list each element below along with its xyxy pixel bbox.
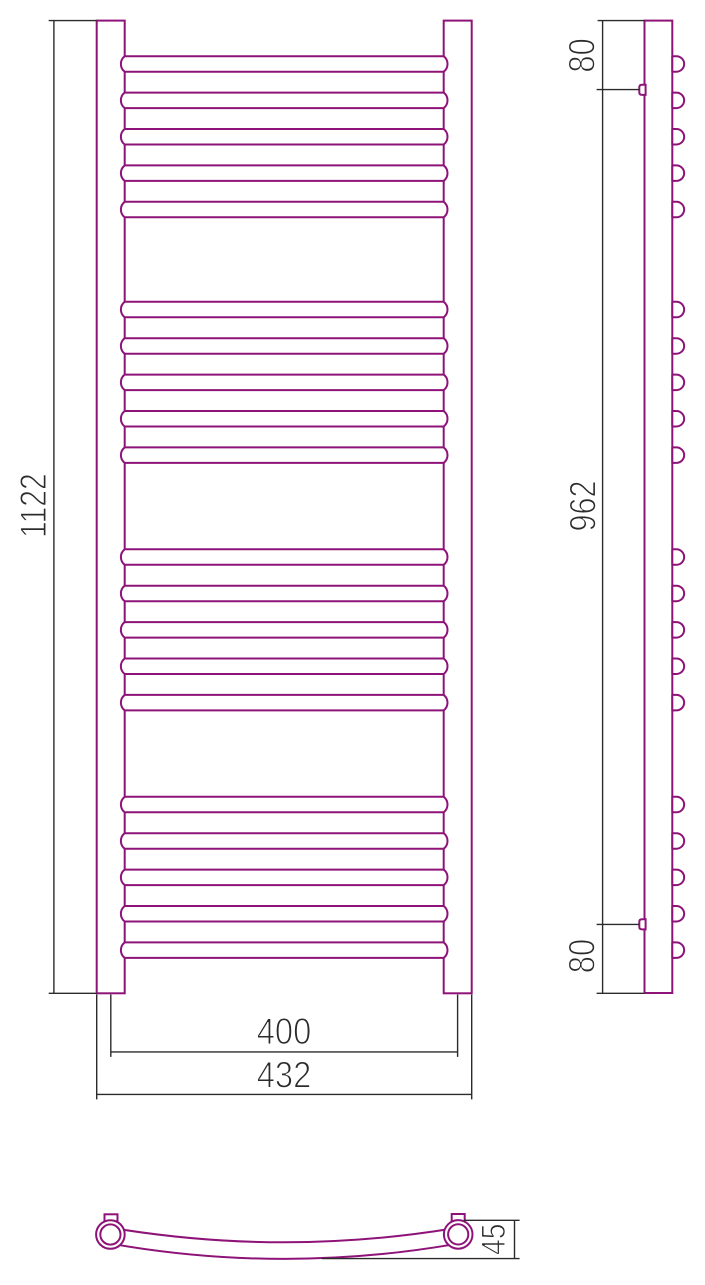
svg-text:962: 962	[561, 481, 603, 532]
svg-text:400: 400	[257, 1010, 312, 1052]
svg-text:45: 45	[475, 1223, 513, 1255]
svg-text:80: 80	[561, 939, 603, 973]
svg-text:1122: 1122	[12, 473, 54, 538]
svg-text:432: 432	[257, 1053, 312, 1095]
svg-text:80: 80	[561, 38, 603, 72]
